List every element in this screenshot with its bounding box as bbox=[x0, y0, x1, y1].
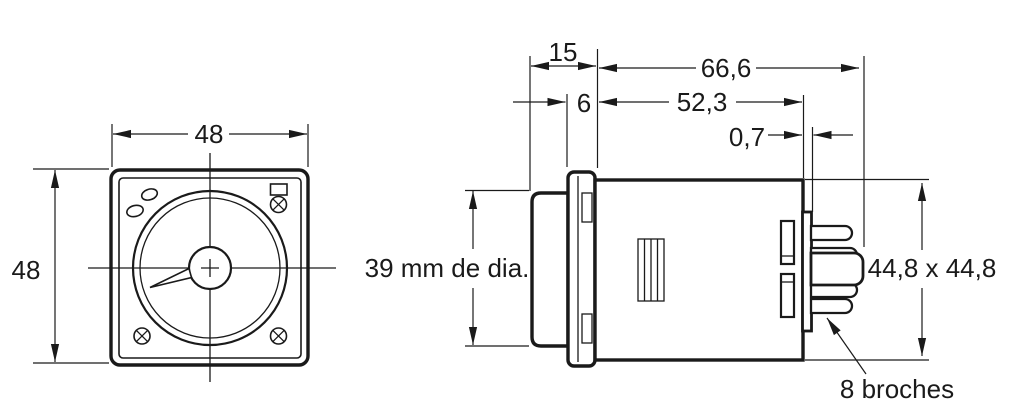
side-view bbox=[532, 172, 863, 366]
connector-pins bbox=[811, 226, 863, 313]
dim-bezel-depth: 15 bbox=[549, 37, 578, 67]
dim-bezel-diameter: 39 mm de dia. bbox=[365, 253, 530, 283]
side-bezel bbox=[532, 193, 568, 346]
dim-front-height: 48 bbox=[12, 255, 41, 285]
dim-plate-thickness: 0,7 bbox=[729, 122, 765, 152]
dim-socket-size: 44,8 x 44,8 bbox=[868, 253, 997, 283]
pin-1 bbox=[811, 226, 852, 240]
dim-front-width: 48 bbox=[195, 119, 224, 149]
center-keying-post bbox=[811, 253, 863, 285]
pin-4 bbox=[811, 299, 852, 313]
dim-overall-depth: 66,6 bbox=[701, 53, 752, 83]
dimension-diagram: 48 48 15 66,6 6 52,3 0,7 39 mm de dia. 4… bbox=[0, 0, 1024, 418]
dim-flange-width: 6 bbox=[577, 88, 591, 118]
pins-leader-arrow bbox=[827, 318, 866, 374]
pins-label: 8 broches bbox=[840, 374, 954, 404]
front-view bbox=[88, 153, 336, 382]
side-body bbox=[595, 180, 803, 360]
dim-body-depth: 52,3 bbox=[677, 87, 728, 117]
technical-drawing: 48 48 15 66,6 6 52,3 0,7 39 mm de dia. 4… bbox=[0, 0, 1024, 418]
